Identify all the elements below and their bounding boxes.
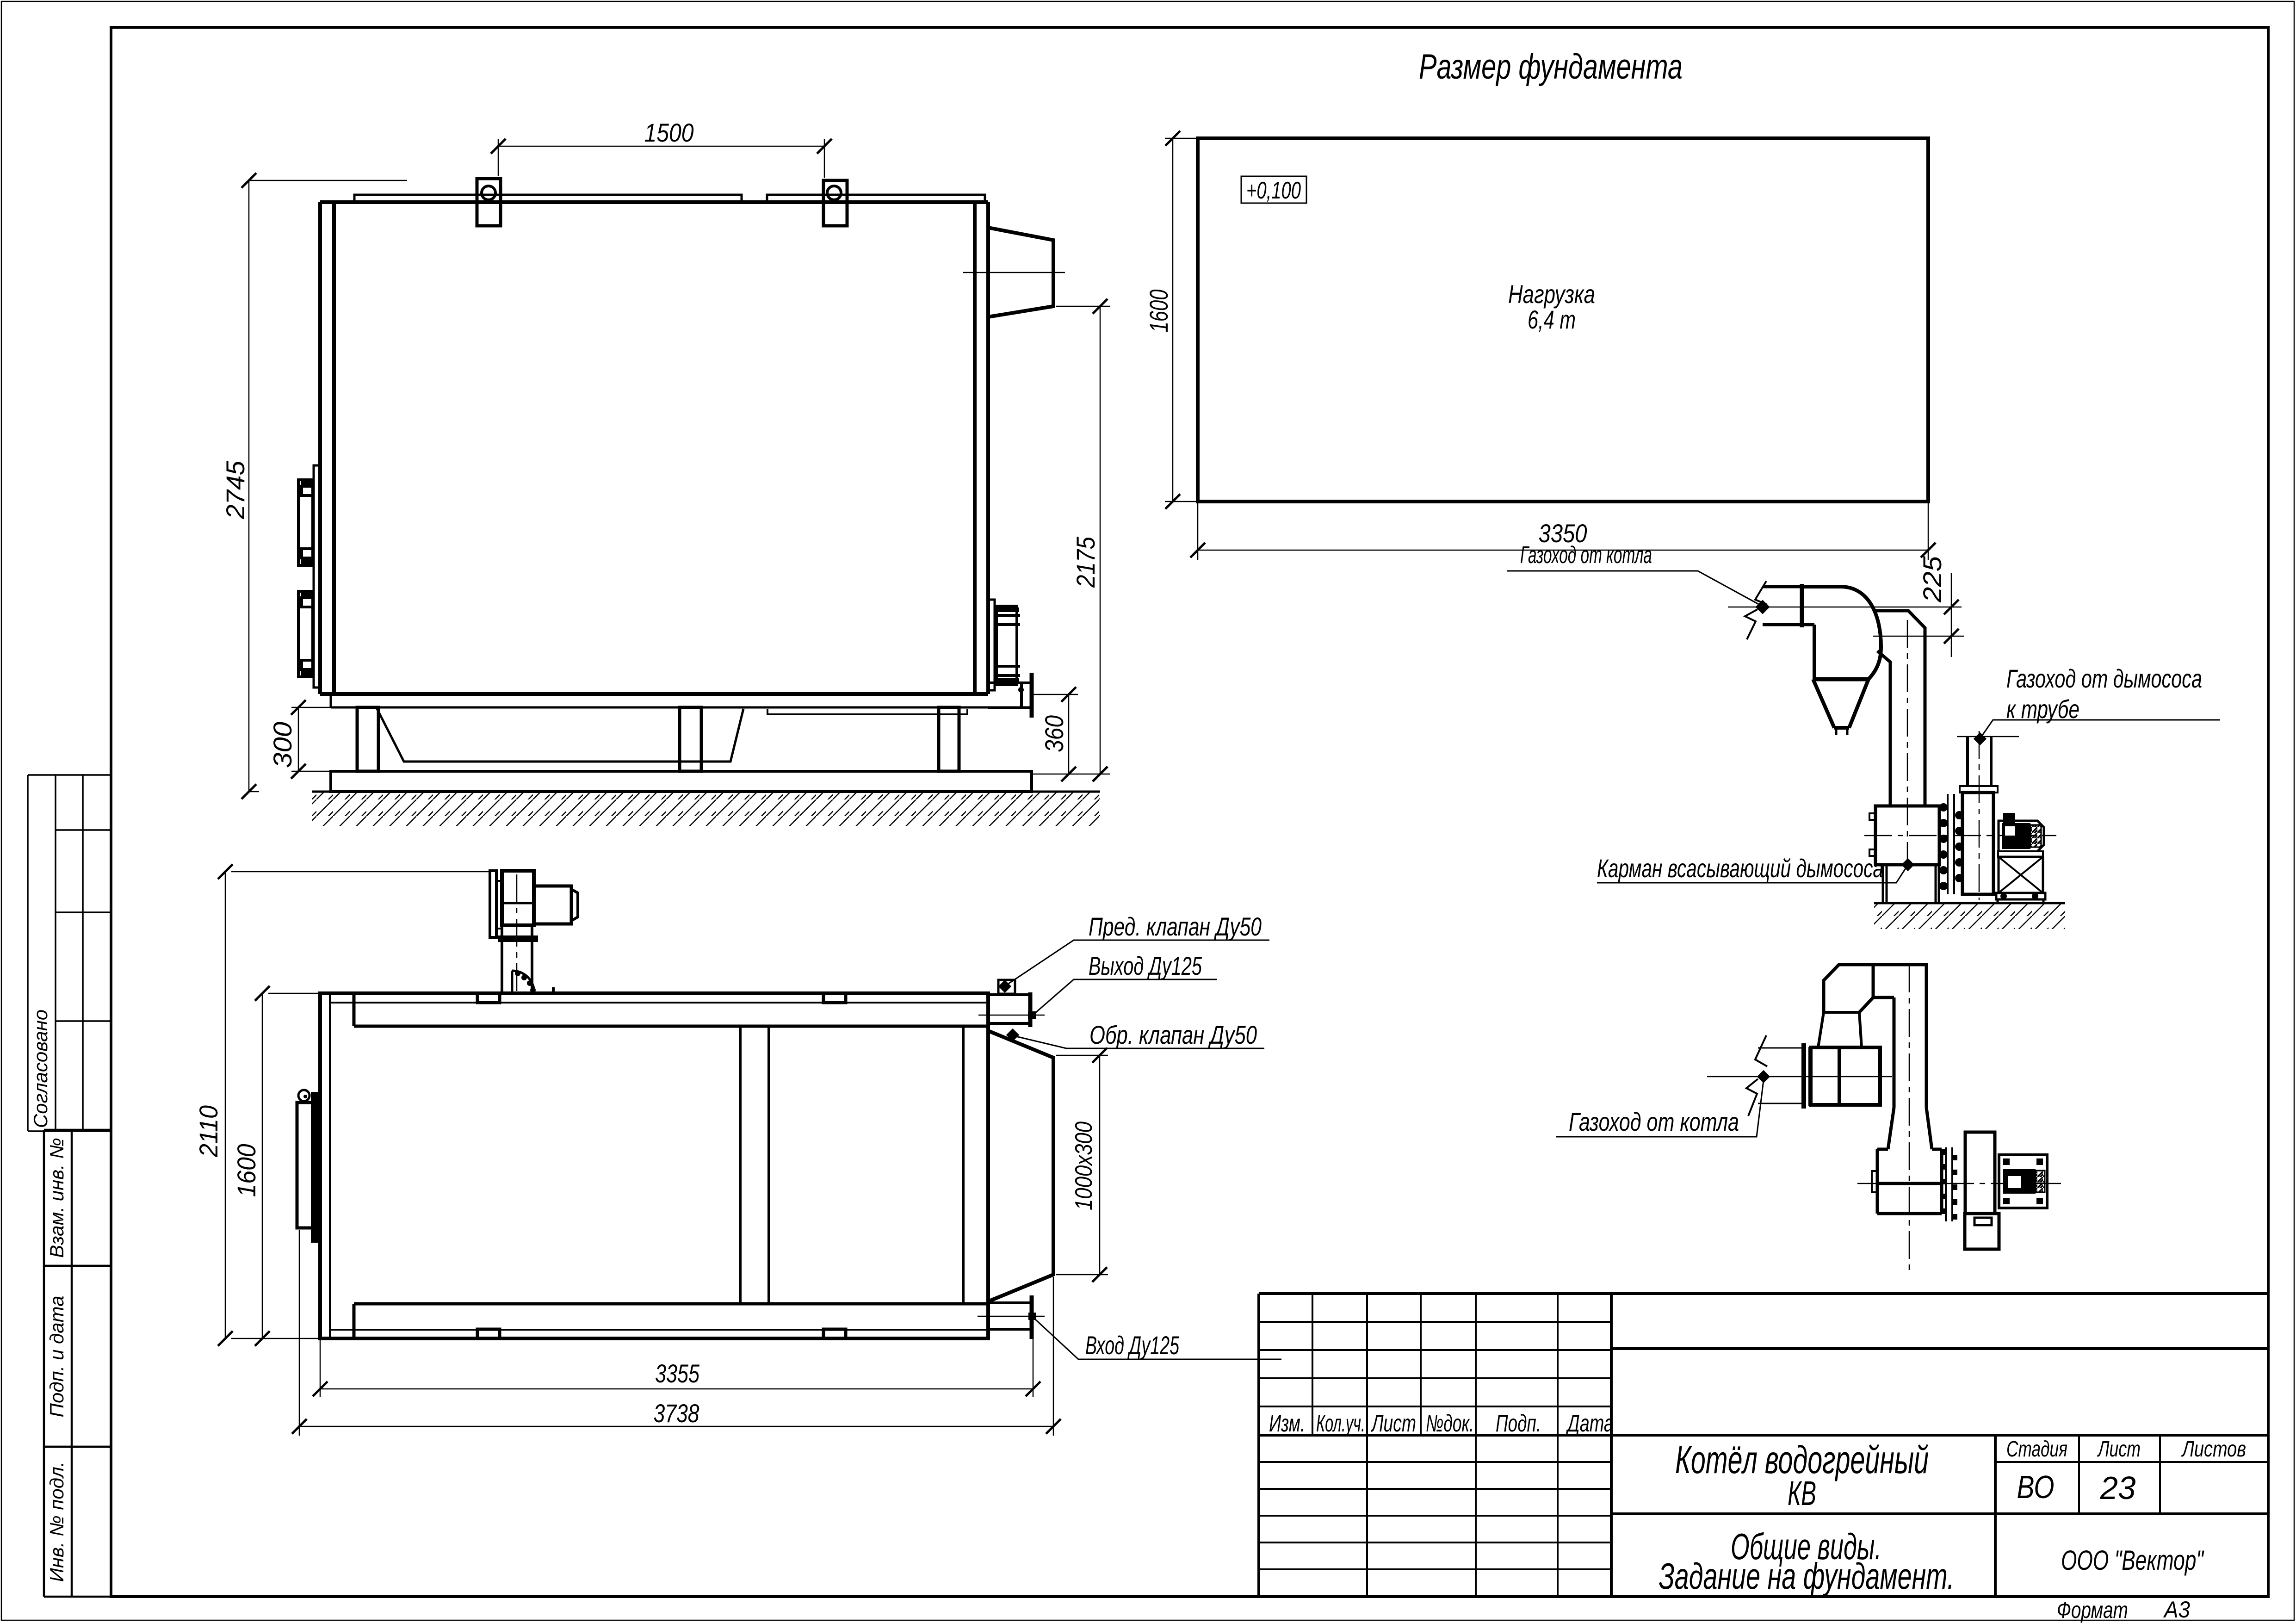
svg-text:Размер фундамента: Размер фундамента [1419,47,1683,87]
svg-text:Изм.: Изм. [1269,1410,1305,1437]
svg-text:А3: А3 [2163,1597,2190,1623]
svg-text:Газоход от котла: Газоход от котла [1569,1107,1739,1136]
svg-text:Газоход от котла: Газоход от котла [1520,542,1652,569]
svg-text:3738: 3738 [654,1399,699,1428]
svg-text:Карман всасывающий дымососа: Карман всасывающий дымососа [1597,854,1883,883]
svg-text:ВО: ВО [2017,1469,2055,1505]
svg-text:Кол.уч.: Кол.уч. [1316,1410,1365,1437]
svg-text:ООО "Вектор": ООО "Вектор" [2061,1545,2204,1576]
svg-text:3355: 3355 [655,1359,700,1388]
svg-text:1600: 1600 [232,1144,261,1197]
svg-text:Нагрузка: Нагрузка [1508,279,1595,309]
svg-text:1500: 1500 [644,118,694,147]
svg-text:Лист: Лист [2097,1437,2141,1462]
svg-text:6,4 т: 6,4 т [1528,305,1576,334]
svg-text:Стадия: Стадия [2006,1437,2067,1462]
svg-text:Выход Ду125: Выход Ду125 [1089,951,1202,980]
svg-text:1600: 1600 [1144,290,1173,333]
svg-text:2110: 2110 [194,1105,223,1158]
svg-text:КВ: КВ [1788,1474,1816,1512]
svg-text:300: 300 [268,722,297,768]
svg-text:+0,100: +0,100 [1246,177,1301,204]
svg-text:Подп. и дата: Подп. и дата [46,1296,68,1418]
svg-text:Пред. клапан Ду50: Пред. клапан Ду50 [1089,912,1262,941]
svg-text:Вход Ду125: Вход Ду125 [1085,1331,1180,1360]
svg-text:Дата: Дата [1566,1410,1614,1437]
svg-text:2745: 2745 [221,460,250,520]
svg-text:Листов: Листов [2181,1437,2246,1462]
svg-text:№док.: №док. [1426,1410,1474,1437]
svg-text:225: 225 [1918,556,1947,603]
svg-text:Газоход от дымососа: Газоход от дымососа [2006,664,2202,693]
svg-text:Инв. № подл.: Инв. № подл. [46,1462,68,1582]
svg-text:Взам. инв. №: Взам. инв. № [46,1138,68,1258]
svg-text:1000х300: 1000х300 [1071,1121,1097,1210]
svg-text:Задание на фундамент.: Задание на фундамент. [1659,1555,1955,1597]
svg-text:Согласовано: Согласовано [30,1010,51,1128]
svg-text:Формат: Формат [2057,1597,2128,1623]
svg-text:23: 23 [2100,1470,2136,1506]
svg-text:360: 360 [1040,715,1069,752]
svg-text:Обр. клапан Ду50: Обр. клапан Ду50 [1089,1020,1257,1049]
svg-text:Подп.: Подп. [1496,1410,1541,1437]
svg-text:2175: 2175 [1071,536,1100,588]
svg-text:Лист: Лист [1371,1410,1416,1437]
